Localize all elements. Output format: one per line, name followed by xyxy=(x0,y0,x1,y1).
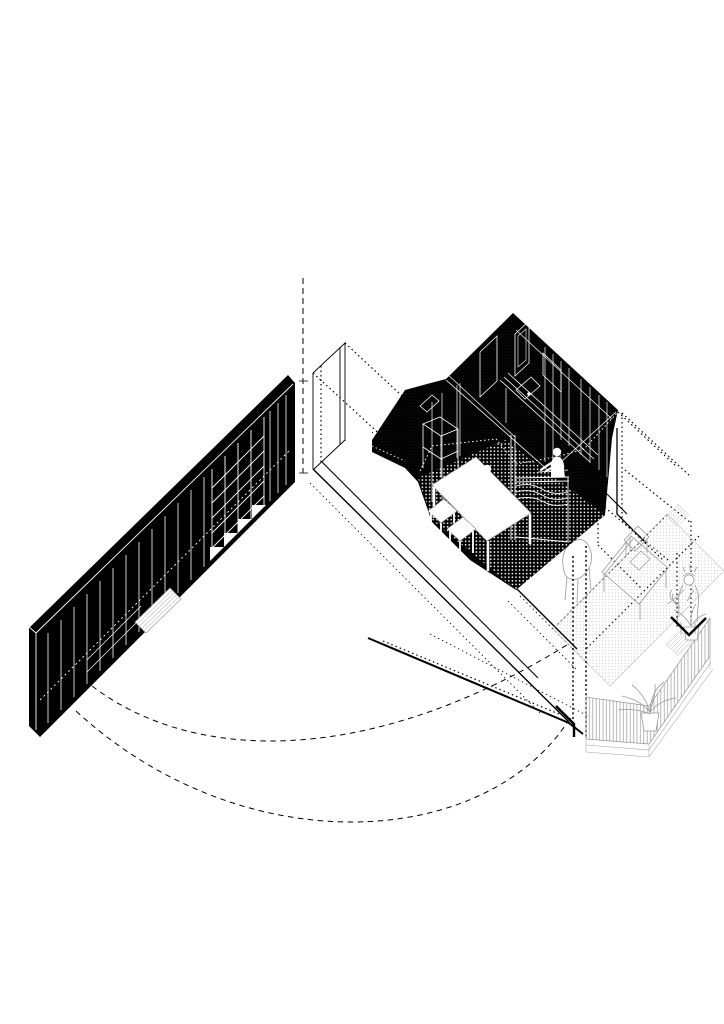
paper-background xyxy=(0,0,724,1024)
axonometric-drawing xyxy=(0,0,724,1024)
axonometric-drawing-page xyxy=(0,0,724,1024)
